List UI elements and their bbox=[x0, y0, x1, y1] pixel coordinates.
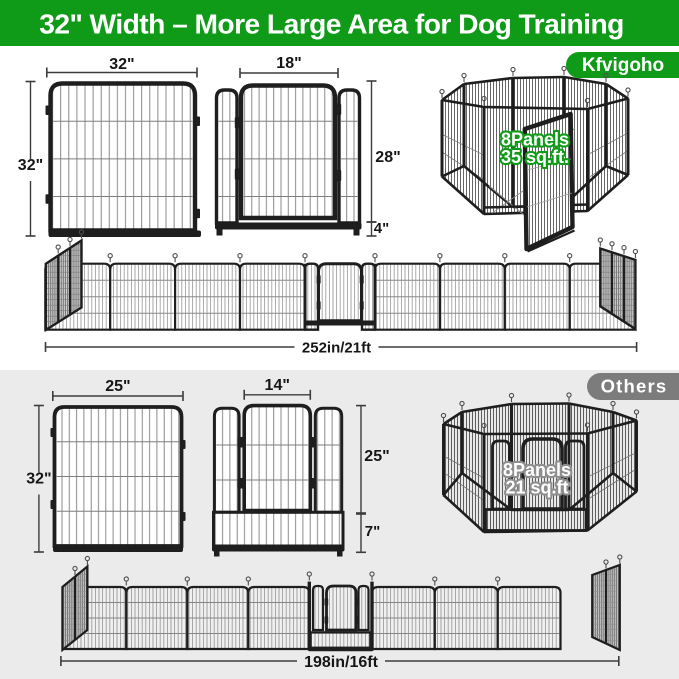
svg-text:32": 32" bbox=[109, 56, 134, 73]
svg-text:25": 25" bbox=[105, 378, 130, 395]
svg-text:35 sq.ft.: 35 sq.ft. bbox=[501, 147, 569, 167]
svg-text:21 sq.ft: 21 sq.ft bbox=[505, 478, 568, 498]
svg-text:32": 32" bbox=[18, 157, 43, 174]
svg-text:7": 7" bbox=[365, 523, 380, 540]
svg-text:14": 14" bbox=[265, 377, 290, 394]
svg-text:25": 25" bbox=[364, 448, 389, 465]
svg-text:4": 4" bbox=[374, 220, 389, 237]
svg-text:32": 32" bbox=[26, 471, 51, 488]
svg-text:32" Width – More Large Area fo: 32" Width – More Large Area for Dog Trai… bbox=[39, 8, 624, 40]
svg-text:Others: Others bbox=[601, 376, 668, 397]
svg-text:28": 28" bbox=[375, 149, 400, 166]
svg-text:198in/16ft: 198in/16ft bbox=[304, 654, 378, 671]
svg-text:252in/21ft: 252in/21ft bbox=[302, 340, 371, 357]
svg-text:Kfvigoho: Kfvigoho bbox=[582, 55, 664, 76]
svg-text:18": 18" bbox=[276, 55, 301, 72]
